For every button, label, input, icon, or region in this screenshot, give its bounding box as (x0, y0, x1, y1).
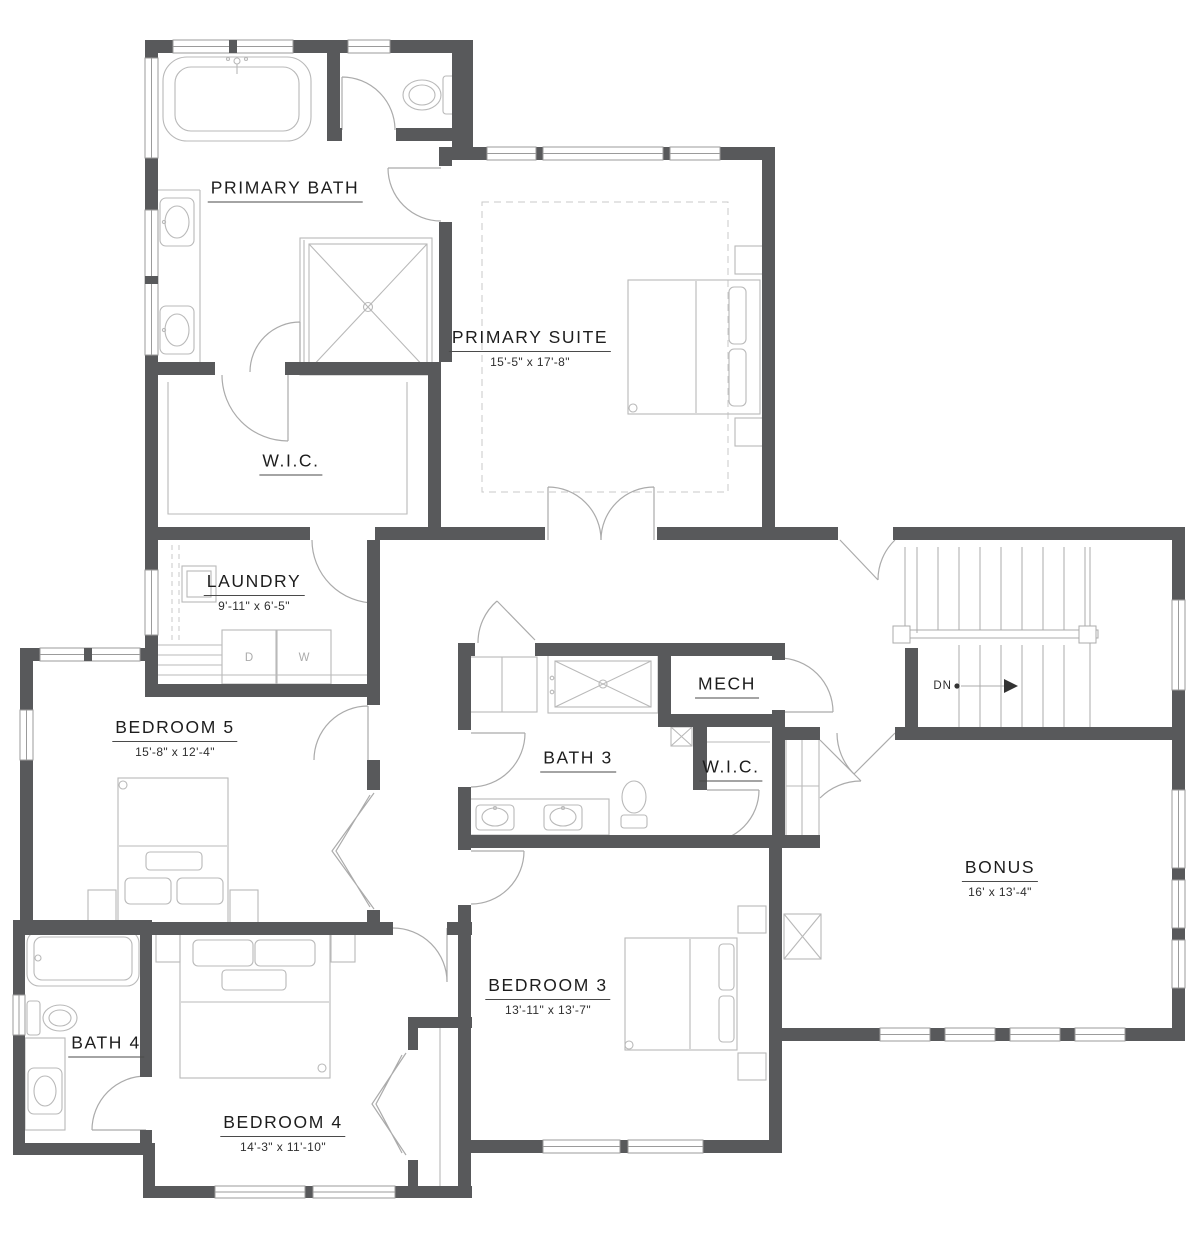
room-label-bath-3: BATH 3 (540, 748, 616, 773)
stairs (893, 547, 1098, 727)
primary-bed (628, 280, 760, 414)
washer-label: W (299, 652, 310, 664)
room-label-primary-bath: PRIMARY BATH (208, 178, 363, 203)
bedroom4-bifold (372, 1053, 406, 1155)
room-label-primary-wic: W.I.C. (259, 451, 322, 476)
room-label-bonus: BONUS 16' x 13'-4" (962, 857, 1038, 899)
bedroom5-bifold (332, 793, 374, 909)
windows (13, 40, 1185, 1198)
room-label-mech: MECH (695, 674, 759, 699)
room-label-wic-2: W.I.C. (699, 757, 762, 782)
bedroom5-bed (118, 778, 228, 924)
room-label-bedroom-5: BEDROOM 5 15'-8" x 12'-4" (112, 717, 237, 759)
bath4-toilet (27, 1001, 40, 1035)
room-label-bedroom-3: BEDROOM 3 13'-11" x 13'-7" (485, 975, 610, 1017)
floor-plan: PRIMARY BATH PRIMARY SUITE 15'-5" x 17'-… (0, 0, 1200, 1236)
bath3-toilet (622, 781, 646, 813)
bath4-vanity (25, 1038, 65, 1130)
bedroom3-bed (625, 938, 737, 1050)
laundry-counter-lines (152, 645, 375, 675)
dryer-label: D (245, 652, 253, 664)
room-label-primary-suite: PRIMARY SUITE 15'-5" x 17'-8" (449, 327, 611, 369)
room-label-laundry: LAUNDRY 9'-11" x 6'-5" (204, 571, 305, 613)
bath4-tub (27, 931, 139, 986)
floor-plan-drawing (0, 0, 1200, 1236)
room-label-bath-4: BATH 4 (68, 1033, 144, 1058)
stairs-down-label: DN (933, 680, 952, 692)
walls (13, 40, 1185, 1198)
room-label-bedroom-4: BEDROOM 4 14'-3" x 11'-10" (220, 1112, 345, 1154)
